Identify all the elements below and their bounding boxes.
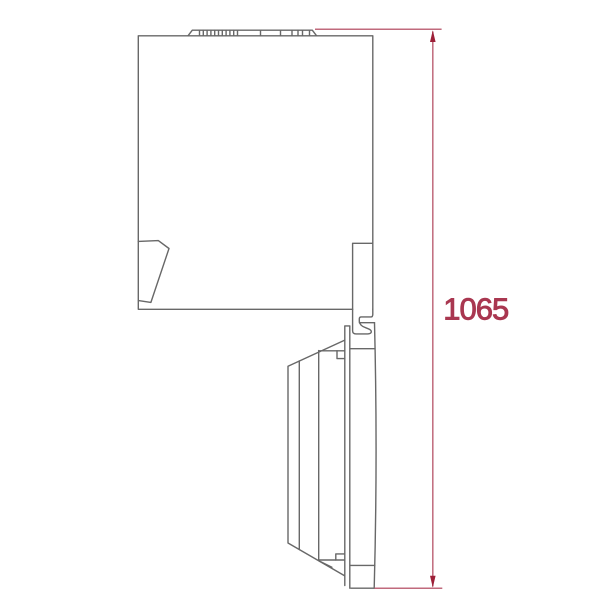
svg-text:1065: 1065: [443, 292, 508, 327]
